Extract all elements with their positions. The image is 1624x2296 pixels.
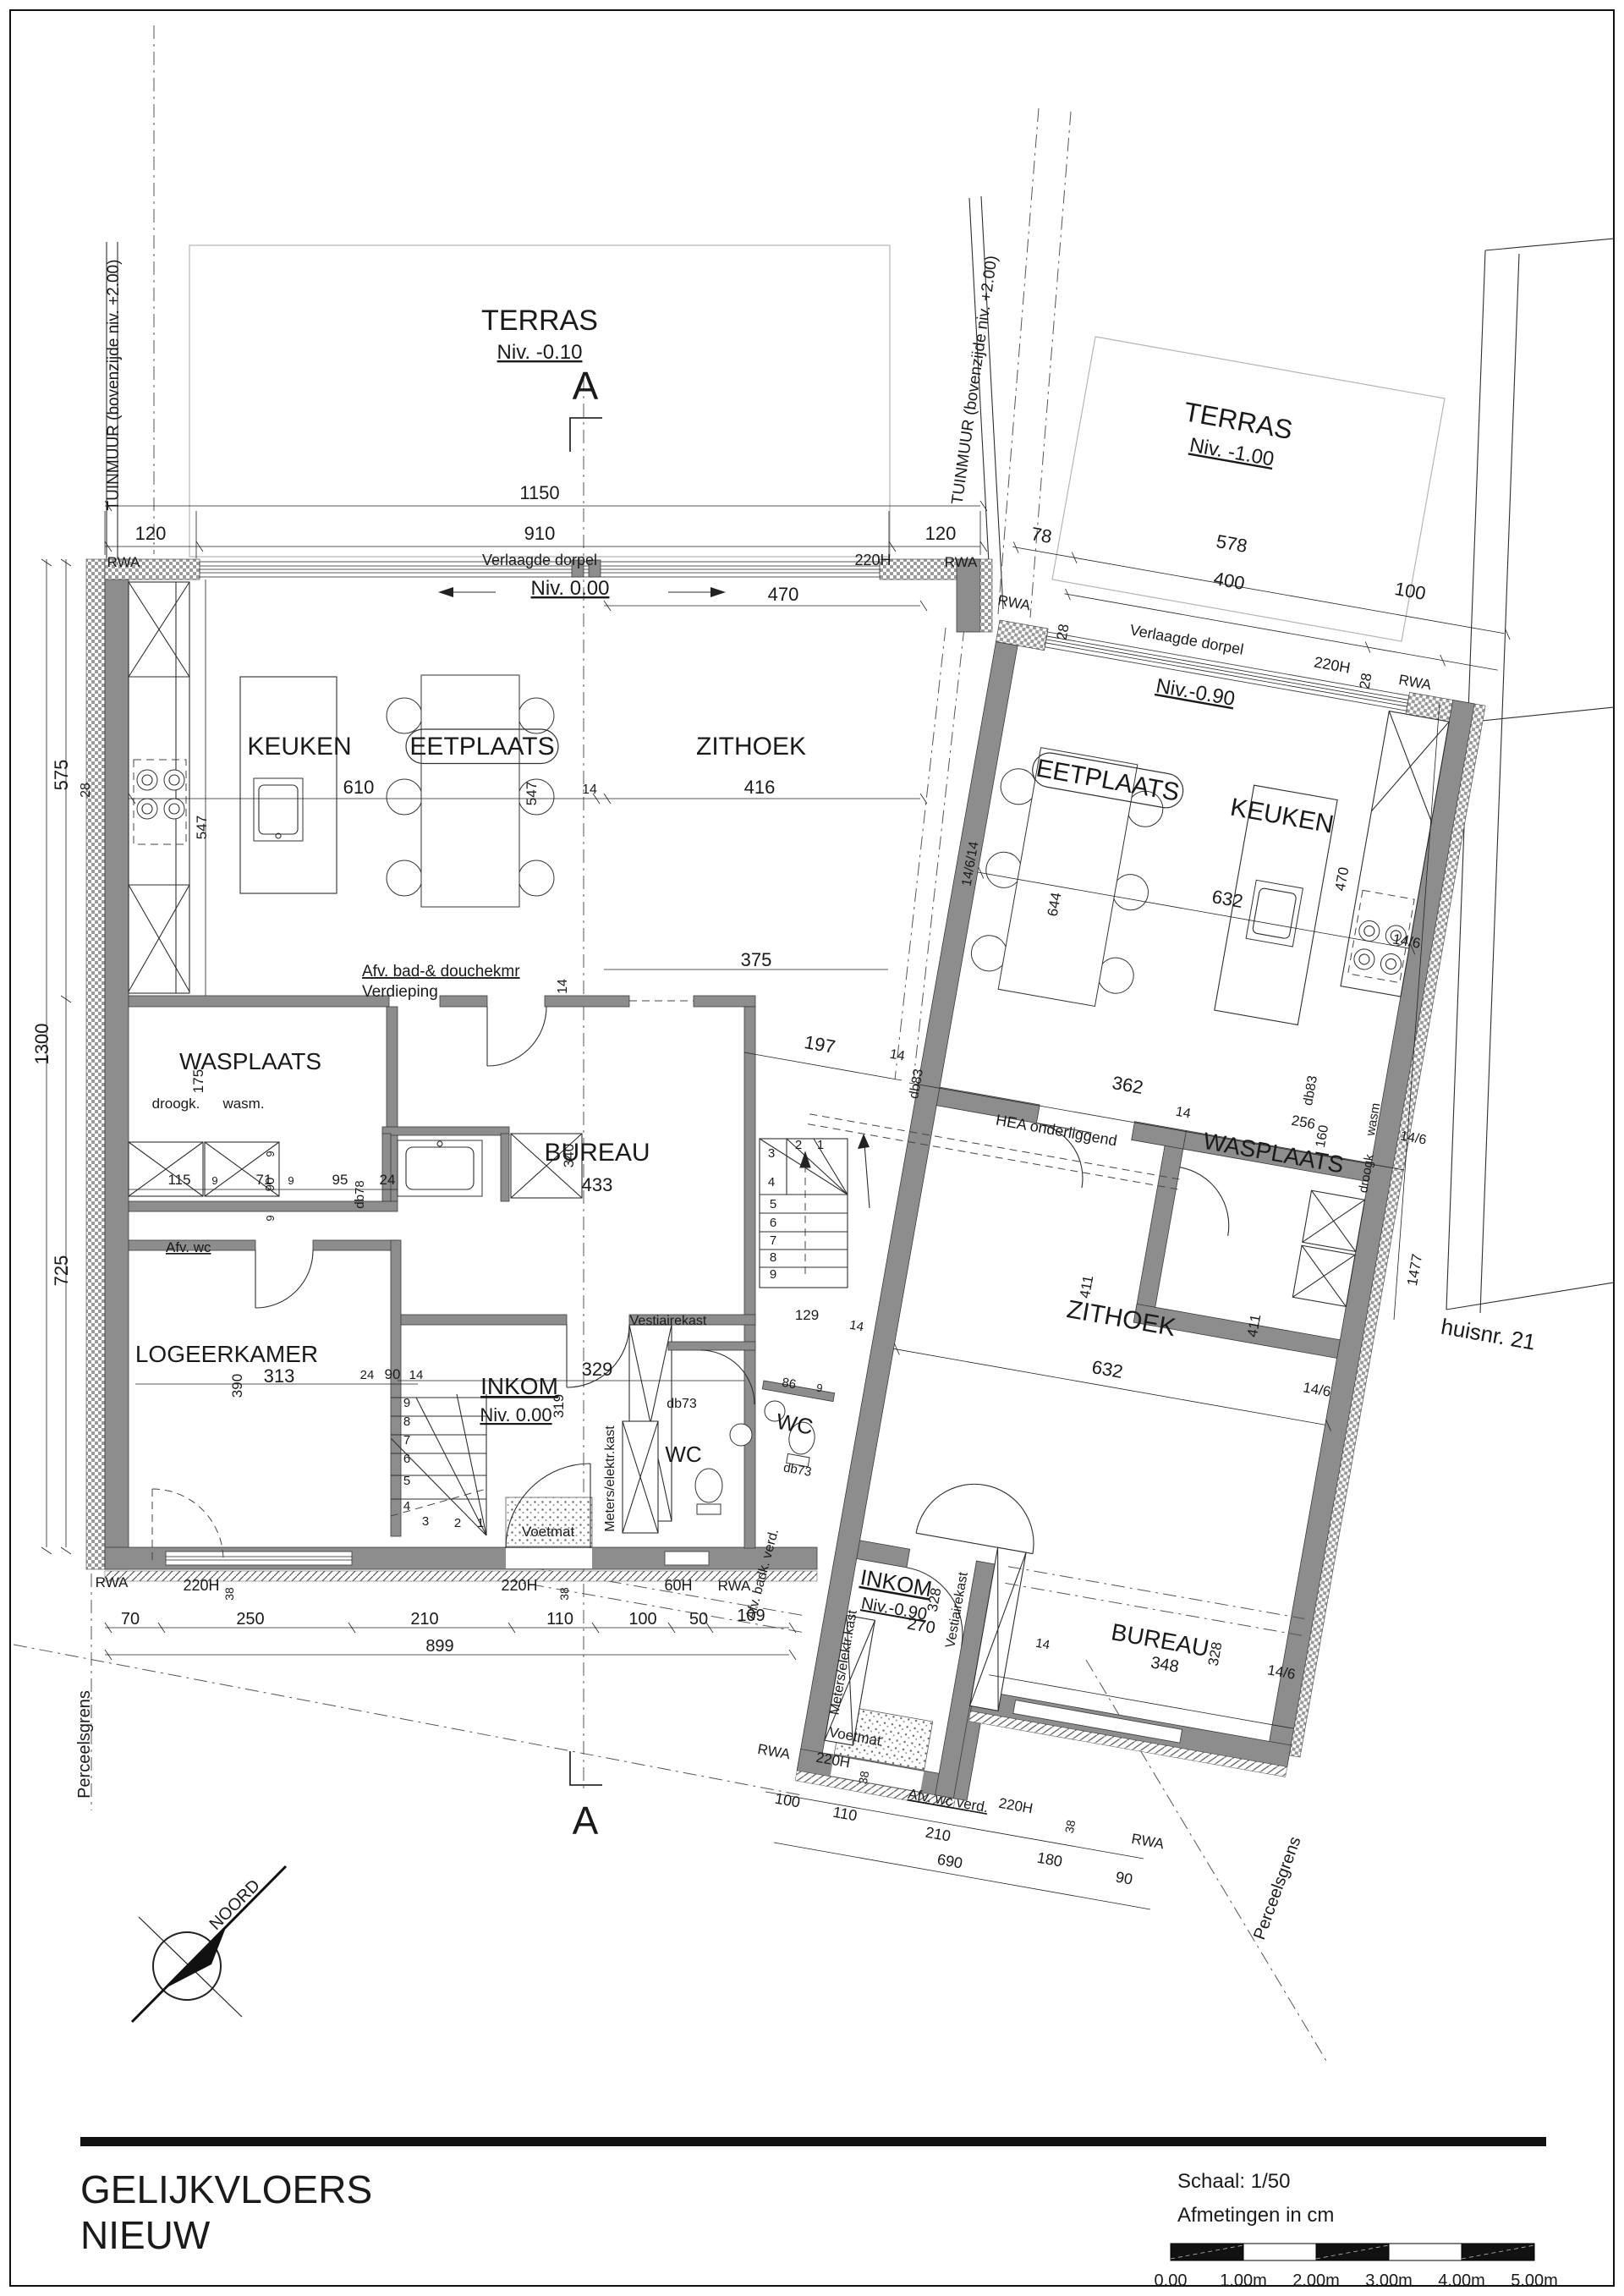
label-91: 390: [229, 1374, 245, 1398]
label-75: 9: [288, 1174, 294, 1187]
label-8: 1150: [519, 482, 559, 503]
label-143: 109: [737, 1607, 765, 1625]
room-label-wc-left: WC: [665, 1442, 701, 1467]
label-141: 100: [628, 1610, 656, 1629]
label-129: RWA: [96, 1574, 129, 1590]
label-108: Voetmat: [522, 1524, 575, 1540]
label-125: 2: [795, 1138, 802, 1152]
label-99: 319: [551, 1394, 567, 1418]
label-67: wasm.: [222, 1096, 264, 1112]
label-92: 313: [264, 1365, 295, 1387]
label-25: 220H: [1313, 654, 1352, 677]
label-61: db83: [1301, 1074, 1320, 1107]
label-161: 38: [856, 1770, 871, 1785]
level-terras-left: Niv. -0.10: [497, 341, 583, 364]
level-right-house: Niv.-0.90: [1155, 674, 1237, 711]
label-59: 256: [1290, 1112, 1316, 1133]
north-label: NOORD: [206, 1876, 264, 1934]
label-116: 2: [454, 1516, 461, 1530]
right-building: [695, 525, 1512, 1869]
label-150: 270: [906, 1614, 937, 1637]
floor-plan-svg: TERRASNiv. -0.10AATUINMUUR (bovenzijde n…: [0, 0, 1624, 2296]
tuinmuur-right: TUINMUUR (bovenzijde niv. +2.00): [948, 255, 1001, 506]
label-124: 9: [770, 1267, 776, 1282]
label-140: 110: [546, 1610, 573, 1629]
label-29: 575: [51, 760, 72, 791]
label-144: 899: [425, 1637, 453, 1656]
label-22: RWA: [996, 592, 1032, 614]
label-131: 38: [222, 1587, 236, 1601]
label-169: 690: [936, 1851, 964, 1872]
label-132: 220H: [501, 1577, 537, 1594]
label-51: 375: [741, 949, 772, 970]
label-94: 90: [385, 1366, 401, 1382]
room-label-keuken-left: KEUKEN: [247, 733, 351, 761]
label-19: 578: [1215, 530, 1249, 557]
label-139: 210: [410, 1610, 438, 1629]
label-123: 8: [770, 1250, 776, 1265]
label-85: 411: [1077, 1274, 1096, 1299]
label-135: RWA: [718, 1578, 751, 1594]
kitchen-island-left: [240, 677, 337, 893]
label-165: RWA: [1130, 1831, 1166, 1853]
label-38: 610: [343, 777, 375, 798]
label-98: 329: [582, 1359, 613, 1380]
room-label-zithoek-right: ZITHOEK: [1065, 1295, 1178, 1342]
label-83: 1477: [1404, 1253, 1425, 1288]
label-180: 3.00m: [1365, 2271, 1413, 2290]
units-text: Afmetingen in cm: [1177, 2204, 1334, 2227]
room-label-zithoek-left: ZITHOEK: [696, 733, 806, 761]
label-181: 4.00m: [1438, 2271, 1485, 2290]
label-79: 9: [264, 1151, 277, 1156]
room-label-terras-left: TERRAS: [481, 305, 598, 337]
label-156: 328: [1205, 1640, 1226, 1667]
kitchen-counter-left: [129, 582, 189, 993]
terrace-left: [189, 245, 890, 557]
label-111: 7: [403, 1433, 410, 1447]
label-15: RWA: [945, 554, 978, 570]
label-26: 28: [1357, 672, 1375, 690]
room-label-wasplaats-left: WASPLAATS: [179, 1048, 321, 1074]
label-182: 5.00m: [1511, 2271, 1558, 2290]
label-101: db73: [667, 1397, 697, 1411]
label-114: 4: [403, 1499, 410, 1513]
label-118: 3: [768, 1146, 775, 1161]
label-109: 9: [403, 1396, 410, 1410]
tuinmuur-left: TUINMUUR (bovenzijde niv. +2.00): [105, 260, 123, 511]
label-171: 90: [1114, 1869, 1133, 1888]
scale-bar: [1171, 2244, 1534, 2260]
label-71: 433: [582, 1174, 613, 1195]
label-87: 632: [1090, 1356, 1125, 1382]
label-119: 4: [768, 1175, 775, 1189]
label-168: 210: [924, 1824, 952, 1845]
label-138: 250: [236, 1610, 264, 1629]
parcel-boundary-right: Perceelsgrens: [1250, 1834, 1304, 1942]
label-128: 14: [848, 1318, 864, 1335]
section-marker-a-top: A: [573, 364, 599, 408]
label-127: 129: [795, 1307, 819, 1323]
room-label-eetplaats-left: EETPLAATS: [409, 733, 554, 761]
label-73: 9: [211, 1174, 217, 1187]
label-32: 1300: [31, 1024, 52, 1065]
label-80: 90: [263, 1178, 277, 1192]
label-76: 95: [332, 1172, 348, 1188]
label-120: 5: [770, 1197, 776, 1211]
label-30: 28: [79, 783, 93, 798]
label-57: 14: [1175, 1105, 1193, 1122]
label-18: 78: [1029, 523, 1053, 547]
label-159: RWA: [756, 1741, 792, 1763]
label-78: 24: [380, 1172, 396, 1188]
label-115: 3: [422, 1514, 429, 1529]
label-95: 14: [409, 1368, 424, 1382]
label-112: 6: [403, 1452, 410, 1466]
label-39: 547: [524, 782, 540, 805]
title-bar: [80, 2137, 1546, 2146]
label-117: 1: [477, 1516, 484, 1530]
label-47: 470: [1332, 865, 1352, 892]
room-label-logeerkamer: LOGEERKAMER: [135, 1341, 318, 1367]
drawing-sheet: TERRASNiv. -0.10AATUINMUUR (bovenzijde n…: [0, 0, 1624, 2296]
label-122: 7: [770, 1233, 776, 1248]
label-121: 6: [770, 1216, 776, 1230]
label-167: 110: [831, 1804, 859, 1825]
label-134: 60H: [664, 1577, 692, 1594]
label-72: 115: [167, 1172, 190, 1188]
label-164: 38: [1062, 1819, 1078, 1834]
label-178: 1.00m: [1220, 2271, 1267, 2290]
label-56: 362: [1111, 1072, 1145, 1098]
label-82: Afv. wc: [166, 1239, 211, 1255]
label-155: 348: [1149, 1653, 1181, 1676]
label-93: 24: [360, 1368, 375, 1382]
level-left-house: Niv. 0.00: [531, 577, 610, 600]
label-21: 100: [1393, 578, 1428, 604]
label-77: db78: [353, 1180, 367, 1208]
label-27: RWA: [1397, 672, 1433, 694]
label-177: 0.00: [1155, 2271, 1188, 2290]
label-49: Afv. bad-& douchekmr: [362, 963, 520, 980]
label-113: 5: [403, 1474, 410, 1488]
label-163: 220H: [997, 1795, 1034, 1817]
label-46: 632: [1210, 886, 1245, 912]
label-133: 38: [557, 1587, 571, 1601]
label-81: 9: [264, 1215, 277, 1221]
label-10: 910: [524, 523, 556, 544]
section-marker-a-bottom: A: [573, 1799, 599, 1843]
label-66: droogk.: [152, 1096, 200, 1112]
label-31: 547: [194, 816, 210, 839]
stair-main: [760, 1139, 848, 1288]
room-label-inkom-left: INKOM: [480, 1373, 558, 1399]
label-9: 120: [135, 523, 167, 544]
label-100: Vestiairekast: [630, 1314, 707, 1328]
label-50: Verdieping: [362, 983, 438, 1001]
sheet-title-line2: NIEUW: [80, 2213, 211, 2257]
label-137: 70: [121, 1610, 140, 1629]
room-label-wc-second: WC: [775, 1409, 815, 1440]
label-142: 50: [689, 1610, 708, 1629]
label-88: 14/6: [1302, 1379, 1332, 1399]
label-170: 180: [1036, 1849, 1064, 1870]
label-126: 1: [817, 1138, 824, 1152]
label-53: 197: [803, 1031, 837, 1057]
label-17: 470: [768, 584, 799, 605]
terrace-right: [1052, 337, 1445, 641]
parcel-boundary-left: Perceelsgrens: [75, 1690, 94, 1799]
label-130: 220H: [183, 1577, 219, 1594]
label-60: 160: [1314, 1124, 1331, 1149]
label-103: Meters/elektr.kast: [603, 1425, 617, 1532]
neighbor-house-number: huisnr. 21: [1439, 1314, 1537, 1355]
scale-text: Schaal: 1/50: [1177, 2170, 1290, 2193]
label-110: 8: [403, 1414, 410, 1429]
label-166: 100: [774, 1790, 802, 1811]
label-12: RWA: [107, 554, 140, 570]
label-13: Verlaagde dorpel: [482, 552, 597, 569]
label-149: 328: [924, 1586, 945, 1612]
label-14: 220H: [854, 552, 891, 569]
label-23: 28: [1054, 623, 1073, 641]
label-97: Niv. 0.00: [480, 1404, 551, 1425]
room-label-keuken-right: KEUKEN: [1228, 794, 1336, 839]
label-11: 120: [925, 523, 957, 544]
label-54: 14: [889, 1047, 907, 1064]
label-70: 340: [561, 1144, 577, 1167]
label-33: 725: [51, 1255, 72, 1287]
label-153: 14: [1034, 1636, 1051, 1653]
label-41: 416: [744, 777, 776, 798]
label-40: 14: [582, 783, 597, 797]
label-179: 2.00m: [1292, 2271, 1340, 2290]
label-52: 14: [556, 979, 570, 994]
label-104: 86: [781, 1376, 797, 1392]
sheet-title-line1: GELIJKVLOERS: [80, 2167, 372, 2211]
label-20: 400: [1212, 568, 1247, 594]
beam-note: HEA onderliggend: [995, 1112, 1118, 1150]
